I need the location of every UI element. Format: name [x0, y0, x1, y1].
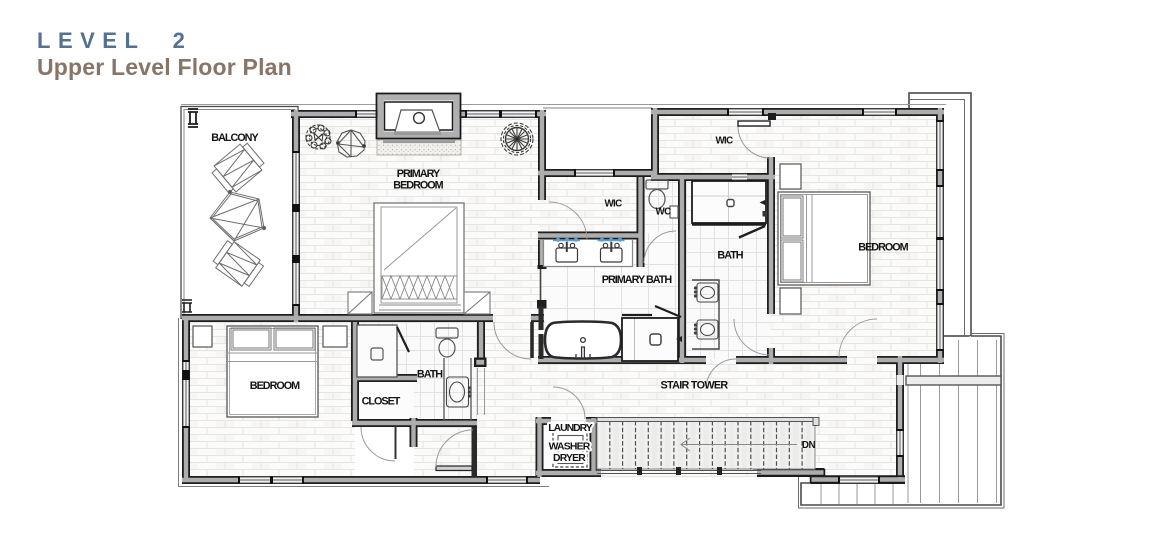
svg-text:PRIMARY BATH: PRIMARY BATH — [602, 274, 673, 286]
svg-text:BEDROOM: BEDROOM — [858, 242, 908, 254]
svg-text:CLOSET: CLOSET — [362, 396, 401, 408]
svg-text:BALCONY: BALCONY — [211, 132, 259, 144]
svg-text:LAUNDRY: LAUNDRY — [548, 423, 592, 434]
svg-text:BATH: BATH — [717, 250, 743, 262]
svg-text:BEDROOM: BEDROOM — [250, 380, 300, 392]
svg-text:WIC: WIC — [716, 136, 734, 147]
svg-text:PRIMARY: PRIMARY — [397, 168, 441, 180]
svg-text:BEDROOM: BEDROOM — [393, 180, 443, 192]
svg-text:WC: WC — [656, 207, 672, 218]
svg-text:WASHER: WASHER — [549, 442, 591, 453]
svg-text:DN: DN — [802, 440, 816, 451]
svg-text:STAIR TOWER: STAIR TOWER — [661, 380, 729, 392]
svg-text:BATH: BATH — [417, 369, 443, 381]
svg-text:WIC: WIC — [605, 199, 623, 210]
svg-text:DRYER: DRYER — [553, 453, 586, 464]
